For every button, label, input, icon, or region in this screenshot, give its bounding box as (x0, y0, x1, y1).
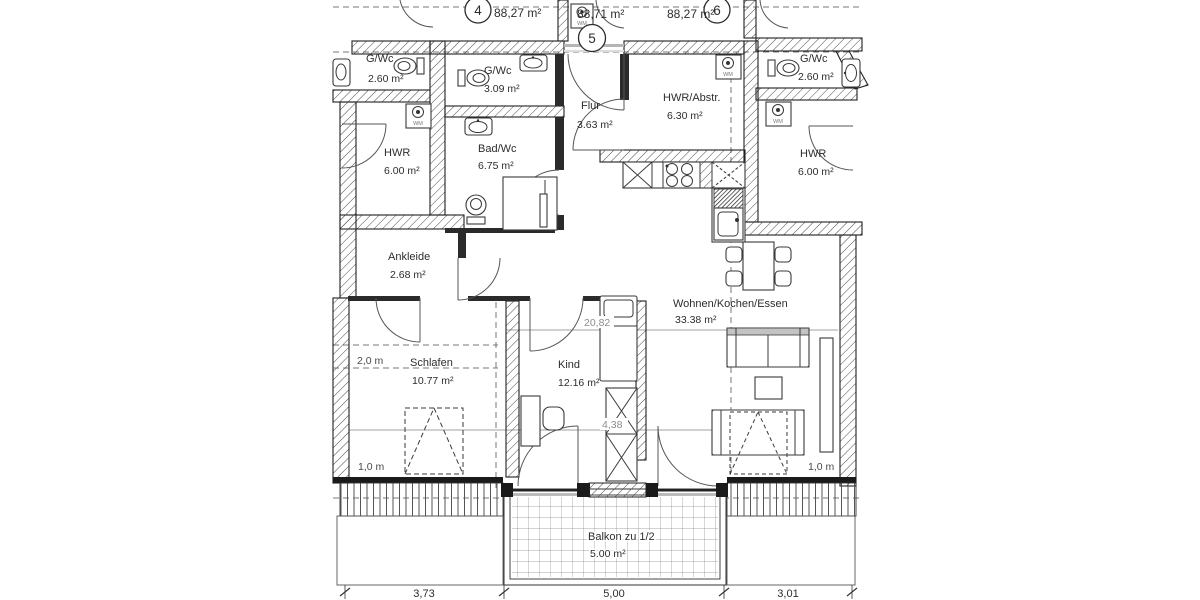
unit-5-number: 5 (588, 31, 596, 46)
ankleide-door (458, 258, 500, 300)
room-area-left-gwc: 2.60 m² (368, 73, 404, 85)
sink-icon (714, 208, 743, 240)
room-area-left-hwr: 6.00 m² (384, 165, 420, 177)
room-area-gwc: 3.09 m² (484, 83, 520, 95)
room-area-schlafen: 10.77 m² (412, 375, 454, 387)
wm-label: WM (413, 121, 423, 127)
dishwasher-icon (714, 189, 743, 208)
room-name-left-gwc: G/Wc (366, 53, 394, 65)
chair-icon (726, 247, 742, 262)
unit-5-area: 88,71 m² (577, 7, 624, 21)
unit-6-number: 6 (713, 3, 721, 18)
room-area-hwr-abstr: 6.30 m² (667, 110, 703, 122)
sofa-icon (727, 328, 809, 367)
room-area-balkon: 5.00 m² (590, 548, 626, 560)
unit-6-area: 88,27 m² (667, 7, 714, 21)
room-name-ankleide: Ankleide (388, 251, 430, 263)
kind-door (530, 298, 583, 351)
room-name-balkon: Balkon zu 1/2 (588, 531, 655, 543)
unit-4-area: 88,27 m² (494, 6, 541, 20)
wardrobe-icon (606, 388, 637, 481)
dimension-left: 3,73 (413, 588, 434, 600)
desk-icon (521, 396, 540, 446)
schlafen-bed-dashed (405, 408, 463, 474)
living-furniture (712, 328, 833, 474)
washing-machine-icon: WM (766, 102, 791, 126)
room-area-flur: 3.63 m² (577, 119, 613, 131)
toilet-icon (394, 58, 424, 74)
room-area-ankleide: 2.68 m² (390, 269, 426, 281)
room-area-kind: 12.16 m² (558, 377, 600, 389)
room-area-right-gwc: 2.60 m² (798, 71, 834, 83)
unit-4-number: 4 (474, 3, 482, 18)
toilet-icon (768, 60, 799, 76)
washing-machine-icon: WM (406, 104, 431, 128)
dimension-labels: 3,73 5,00 3,01 (413, 588, 798, 600)
chair-icon (775, 247, 791, 262)
wm-label: WM (723, 72, 733, 78)
chair-icon (775, 271, 791, 286)
dining-set (726, 242, 791, 290)
dining-table (743, 242, 774, 290)
height-1m-label-left: 1,0 m (358, 461, 385, 473)
fixtures (333, 55, 860, 230)
roof-plane-right (727, 516, 855, 585)
washbasin-icon (465, 118, 492, 135)
bed-icon (600, 296, 637, 381)
coffee-table (755, 377, 782, 399)
room-name-flur: Flur (581, 100, 600, 112)
schlafen-door (376, 298, 420, 342)
washing-machine-icon: WM (716, 55, 741, 79)
room-name-schlafen: Schlafen (410, 357, 453, 369)
level-label-20: 20,82 (584, 317, 610, 329)
room-name-left-hwr: HWR (384, 147, 410, 159)
height-2m-label: 2,0 m (357, 355, 384, 367)
room-name-hwr-abstr: HWR/Abstr. (663, 92, 720, 104)
floor-plan-canvas: WM (0, 0, 1200, 600)
washbasin-icon (333, 59, 350, 86)
balcony-wall-pier (589, 483, 646, 497)
sofa-bed-icon (712, 410, 804, 474)
roof-strip-right (727, 483, 856, 516)
floor-plan: WM (0, 0, 1200, 600)
balcony-door-right (658, 426, 718, 486)
roof-plane-left (337, 516, 503, 585)
room-area-bad: 6.75 m² (478, 160, 514, 172)
level-label-4: 4,38 (602, 419, 623, 431)
room-name-wohnen: Wohnen/Kochen/Essen (673, 298, 788, 310)
room-name-right-gwc: G/Wc (800, 53, 828, 65)
room-area-wohnen: 33.38 m² (675, 314, 717, 326)
washbasin-icon (520, 55, 547, 71)
kitchen-counter (623, 162, 745, 242)
height-1m-label-right: 1,0 m (808, 461, 835, 473)
sideboard (820, 338, 833, 452)
wm-label: WM (773, 119, 783, 125)
room-name-right-hwr: HWR (800, 148, 826, 160)
dimension-center: 5,00 (603, 588, 624, 600)
dimension-right: 3,01 (777, 588, 798, 600)
chair-icon (726, 271, 742, 286)
room-area-right-hwr: 6.00 m² (798, 166, 834, 178)
desk-chair-icon (543, 407, 564, 430)
room-name-gwc: G/Wc (484, 65, 512, 77)
shower-icon (503, 177, 557, 230)
washbasin-icon (842, 59, 860, 87)
room-name-kind: Kind (558, 359, 580, 371)
toilet-icon (466, 195, 486, 224)
roof-strip-left (340, 483, 503, 516)
room-name-bad: Bad/Wc (478, 143, 517, 155)
